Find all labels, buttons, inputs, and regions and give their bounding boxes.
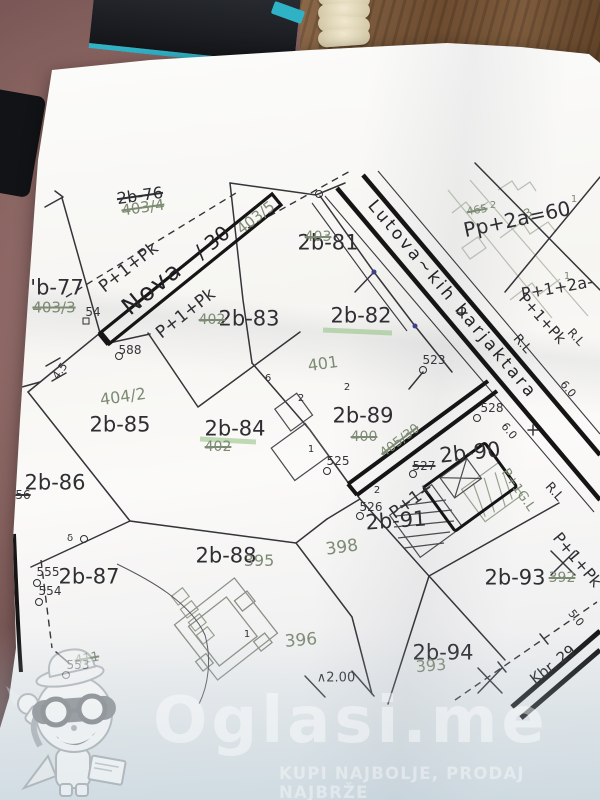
building-annotation: 6.0 [499, 421, 519, 441]
old-parcel-label: 403/4 [121, 198, 166, 219]
parcel-label: 2b-82 [331, 306, 392, 327]
old-parcel-label: 396 [284, 631, 318, 651]
parcel-label: 2b-83 [219, 309, 280, 330]
photo-of-cadastral-plan: 'b-772b-762b-812b-822b-832b-842b-852b-86… [0, 0, 600, 800]
parcel-label: 2b-90 [439, 439, 502, 466]
survey-point-marker [35, 598, 43, 606]
building-annotation: 6 [265, 374, 271, 384]
old-parcel-label: 400 [351, 430, 378, 444]
paper-sheet: 'b-772b-762b-812b-822b-832b-842b-852b-86… [0, 0, 600, 800]
old-parcel-label: 404/2 [99, 386, 147, 408]
survey-point-label: 56 [15, 489, 30, 501]
old-parcel-label: 393 [415, 657, 447, 676]
survey-point-label: 54 [85, 306, 100, 318]
building-annotation: 2 [374, 486, 380, 496]
survey-point-label: 527 [413, 460, 436, 472]
survey-point-label: 528 [481, 402, 504, 414]
old-parcel-label: 465 [466, 203, 489, 217]
cadastral-map: 'b-772b-762b-812b-822b-832b-842b-852b-86… [0, 0, 600, 800]
road-label: / 30 [191, 222, 234, 262]
survey-point-label: 525 [327, 455, 350, 467]
survey-dot-marker [413, 324, 418, 329]
road-label: Kbr. 29 [528, 643, 579, 687]
old-parcel-label: 403/3 [32, 301, 75, 316]
building-annotation: 1 [244, 630, 250, 640]
survey-point-marker [419, 366, 427, 374]
old-parcel-label: 403 [305, 230, 332, 244]
survey-point-marker [409, 470, 417, 478]
building-annotation: 1 [308, 445, 314, 455]
survey-point-marker [115, 352, 123, 360]
building-annotation: R.L [510, 332, 533, 356]
map-labels: 'b-772b-762b-812b-822b-832b-842b-852b-86… [0, 0, 600, 800]
old-parcel-label: 402 [199, 313, 226, 327]
old-parcel-label: 1 [571, 195, 577, 205]
survey-point-label: 554 [39, 585, 62, 597]
old-parcel-label: 405/30 [378, 422, 422, 460]
parcel-label: 2b-84 [205, 419, 266, 440]
old-parcel-label: 1 [564, 272, 570, 282]
building-annotation: R.L [542, 480, 565, 504]
old-parcel-label: 402 [205, 440, 232, 454]
survey-point-marker [83, 318, 90, 325]
parcel-label: 2b-87 [59, 567, 120, 588]
building-annotation: ∧2.00 [317, 672, 355, 685]
parcel-label: 2b-85 [90, 415, 151, 436]
survey-point-marker [33, 579, 41, 587]
old-parcel-label: 398 [325, 537, 360, 558]
parcel-label: 2b-93 [485, 568, 546, 589]
survey-point-marker [473, 414, 481, 422]
survey-point-label: 523 [423, 354, 446, 366]
survey-point-marker [62, 671, 70, 679]
survey-point-marker [315, 190, 323, 198]
survey-dot-marker [372, 270, 377, 275]
survey-point-label: 553 [67, 659, 90, 671]
building-annotation: δ [67, 534, 73, 544]
old-parcel-label: P+1G.L [499, 466, 537, 513]
survey-point-label: 555 [37, 566, 60, 578]
old-parcel-label: 392 [549, 571, 576, 585]
survey-point-marker [356, 512, 364, 520]
parcel-label: 2b-89 [333, 406, 394, 427]
building-annotation: 2 [298, 394, 304, 404]
old-parcel-label: 395 [244, 553, 275, 569]
survey-point-marker [323, 467, 331, 475]
building-annotation: R.L [565, 326, 586, 348]
old-parcel-label: 2 [490, 201, 496, 211]
building-annotation: 2 [344, 383, 350, 393]
parcel-label: 2b-86 [25, 473, 86, 494]
building-annotation: 4.5 [50, 361, 69, 382]
old-parcel-label: 403/5 [234, 199, 277, 237]
parcel-label: 'b-77 [30, 278, 83, 299]
survey-point-label: 526 [360, 501, 383, 513]
building-annotation: 6.0 [558, 379, 578, 399]
survey-point-marker [80, 535, 88, 543]
building-annotation: 5.0 [566, 608, 586, 628]
old-parcel-label: 401 [307, 354, 339, 374]
